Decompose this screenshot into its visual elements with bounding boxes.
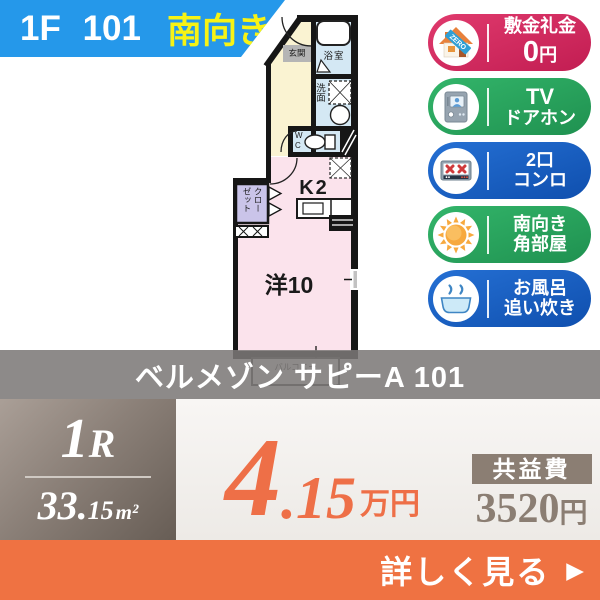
label-genkan: 玄関 xyxy=(283,47,311,59)
badge-divider xyxy=(487,216,489,254)
property-listing-card[interactable]: 玄関 浴室 洗面 W C K2 洋10 クローゼット バルコニー 1F 101 … xyxy=(0,0,600,600)
tv-doorphone-icon xyxy=(433,84,479,130)
badge-line1: TV xyxy=(495,85,585,109)
fee-label-badge: 共益費 xyxy=(472,454,592,484)
label-main-room: 洋10 xyxy=(244,266,334,300)
badge-line1: 2口 xyxy=(495,151,585,170)
label-wc: W C xyxy=(295,131,303,151)
cta-bar[interactable]: 詳しく見る ▶ xyxy=(0,540,600,600)
arrow-icon[interactable]: ▶ xyxy=(566,557,584,584)
badge-divider xyxy=(487,24,489,62)
label-washroom: 洗面 xyxy=(312,83,326,113)
property-name-bar: ベルメゾン サピーA 101 xyxy=(0,350,600,399)
badge-line1: 敷金礼金 xyxy=(495,17,585,36)
washer-pan xyxy=(329,81,351,104)
badge-line1: お風呂 xyxy=(495,279,585,298)
bath-icon xyxy=(433,276,479,322)
property-name: ベルメゾン サピーA 101 xyxy=(135,354,465,396)
details-row: 1R 33.15m² 4.15万円 共益費 3520円 xyxy=(0,399,600,540)
label-closet: クローゼット xyxy=(241,187,263,219)
rent-price: 4.15万円 xyxy=(180,399,465,540)
fridge-space xyxy=(330,158,351,178)
unit-number: 1F 101 xyxy=(20,9,141,49)
closet-window xyxy=(235,226,268,237)
label-bath: 浴室 xyxy=(316,48,352,62)
layout-area-panel: 1R 33.15m² xyxy=(0,399,176,540)
feature-badges: ZERO 敷金礼金 0円 xyxy=(428,14,591,327)
badge-no-deposit: ZERO 敷金礼金 0円 xyxy=(428,14,591,71)
label-kitchen: K2 xyxy=(294,177,334,200)
fee-value: 3520円 xyxy=(463,488,600,530)
badge-line1: 南向き xyxy=(495,215,585,234)
badge-line2: ドアホン xyxy=(495,109,585,128)
common-fee: 共益費 3520円 xyxy=(463,399,600,540)
pipe-shaft xyxy=(340,128,356,155)
badge-divider xyxy=(487,88,489,126)
badge-line2: 追い炊き xyxy=(495,299,585,318)
badge-line2: 0円 xyxy=(495,37,585,68)
badge-divider xyxy=(487,280,489,318)
header-banner: 1F 101 南向き xyxy=(0,0,285,57)
layout-type: 1R xyxy=(0,403,176,476)
badge-line2: 角部屋 xyxy=(495,235,585,254)
badge-divider xyxy=(487,152,489,190)
badge-line2: コンロ xyxy=(495,171,585,190)
badge-two-burner-stove: 2口 コンロ xyxy=(428,142,591,199)
badge-south-corner: 南向き 角部屋 xyxy=(428,206,591,263)
floor-area: 33.15m² xyxy=(0,484,176,528)
cta-label[interactable]: 詳しく見る xyxy=(380,547,550,593)
badge-tv-doorphone: TV ドアホン xyxy=(428,78,591,135)
zero-house-icon: ZERO xyxy=(433,20,479,66)
stove-icon xyxy=(433,148,479,194)
badge-bath-reheating: お風呂 追い炊き xyxy=(428,270,591,327)
panel-divider xyxy=(25,476,151,478)
sun-icon xyxy=(433,212,479,258)
toilet xyxy=(305,135,335,149)
sink xyxy=(331,106,350,125)
